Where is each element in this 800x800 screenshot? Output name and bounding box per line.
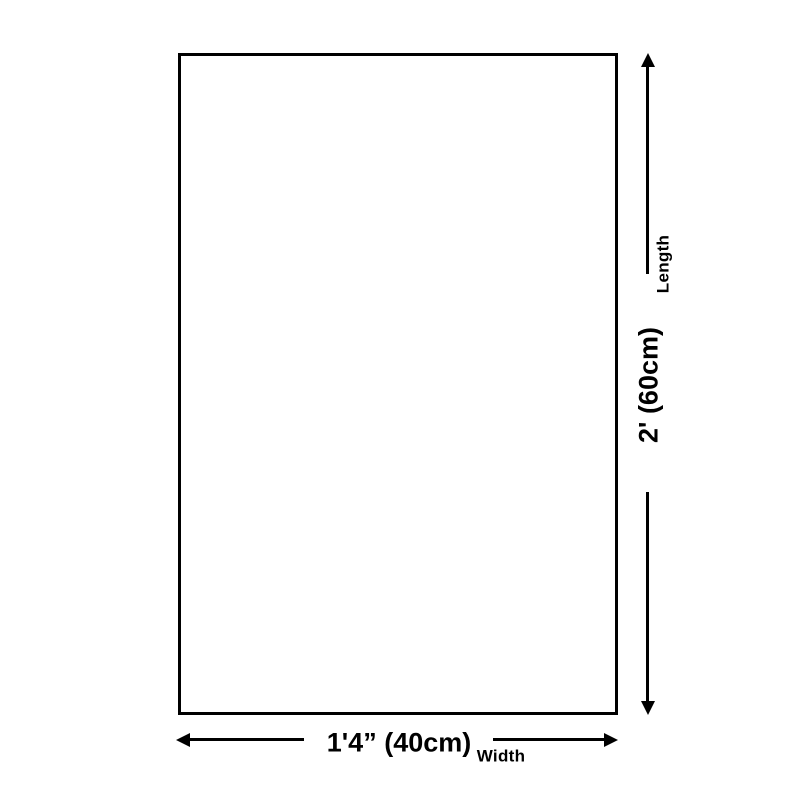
product-outline <box>178 53 618 715</box>
arrow-down-icon <box>641 701 655 715</box>
length-label: Length <box>655 235 672 293</box>
length-dimension-line-bottom <box>646 492 649 702</box>
width-dimension-line-right <box>493 738 605 741</box>
width-value: 1'4” (40cm) <box>327 730 472 757</box>
width-label: Width <box>477 748 526 765</box>
width-dimension-line-left <box>188 738 304 741</box>
arrow-right-icon <box>604 733 618 747</box>
length-value: 2' (60cm) <box>636 327 663 443</box>
length-dimension-line-top <box>646 64 649 274</box>
dimension-diagram: Length 2' (60cm) 1'4” (40cm) Width <box>0 0 800 800</box>
